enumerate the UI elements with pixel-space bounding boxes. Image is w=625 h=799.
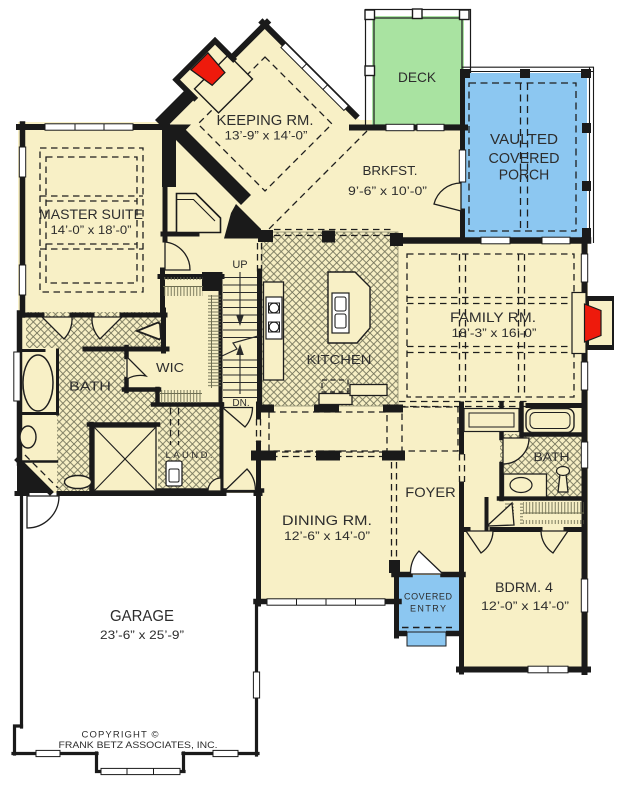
svg-text:VAULTED: VAULTED: [490, 132, 558, 148]
svg-text:FRANK BETZ ASSOCIATES, INC.: FRANK BETZ ASSOCIATES, INC.: [59, 740, 218, 751]
svg-text:13’-9” x 14’-0”: 13’-9” x 14’-0”: [225, 129, 308, 143]
svg-text:DN.: DN.: [232, 398, 249, 409]
svg-text:FAMILY RM.: FAMILY RM.: [450, 309, 536, 325]
svg-text:WIC: WIC: [156, 361, 184, 375]
svg-text:18’-3” x 16’-0”: 18’-3” x 16’-0”: [452, 326, 537, 340]
svg-text:BRKFST.: BRKFST.: [363, 163, 418, 178]
svg-text:BATH: BATH: [69, 379, 111, 394]
svg-text:DECK: DECK: [398, 69, 437, 85]
svg-text:9’-6” x 10’-0”: 9’-6” x 10’-0”: [348, 186, 427, 198]
svg-text:FOYER: FOYER: [405, 484, 456, 500]
svg-text:COPYRIGHT ©: COPYRIGHT ©: [82, 730, 159, 741]
svg-text:MASTER SUITE: MASTER SUITE: [39, 207, 143, 222]
svg-text:GARAGE: GARAGE: [110, 608, 174, 625]
svg-text:KITCHEN: KITCHEN: [307, 353, 372, 367]
svg-text:14’-0” x 18’-0”: 14’-0” x 18’-0”: [51, 223, 132, 237]
svg-text:PORCH: PORCH: [499, 168, 550, 184]
svg-text:COVERED: COVERED: [404, 592, 453, 602]
svg-text:BDRM. 4: BDRM. 4: [495, 580, 554, 595]
svg-text:12’-0” x 14’-0”: 12’-0” x 14’-0”: [481, 599, 569, 613]
svg-text:12’-6” x 14’-0”: 12’-6” x 14’-0”: [284, 529, 370, 543]
svg-text:UP: UP: [232, 259, 247, 271]
svg-text:ENTRY: ENTRY: [410, 604, 446, 614]
svg-text:DINING RM.: DINING RM.: [282, 513, 372, 528]
svg-text:23’-6” x 25’-9”: 23’-6” x 25’-9”: [100, 628, 184, 642]
svg-text:KEEPING RM.: KEEPING RM.: [217, 112, 314, 129]
svg-text:BATH: BATH: [534, 452, 570, 464]
svg-text:COVERED: COVERED: [489, 151, 560, 167]
